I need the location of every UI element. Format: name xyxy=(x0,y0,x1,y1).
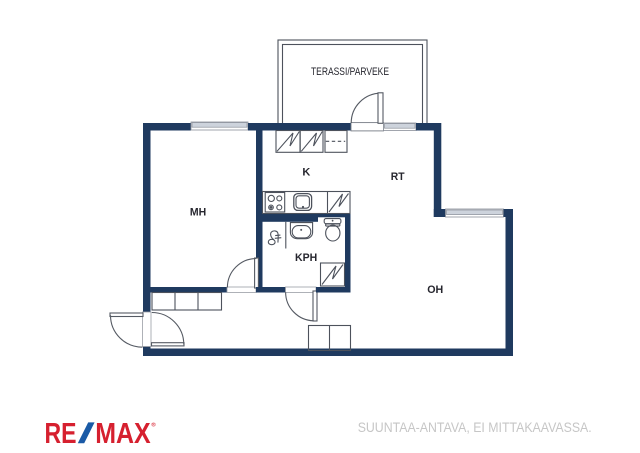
svg-text:TERASSI/PARVEKE: TERASSI/PARVEKE xyxy=(311,66,389,78)
svg-text:MH: MH xyxy=(190,207,206,219)
svg-text:KPH: KPH xyxy=(295,252,317,264)
svg-text:RE: RE xyxy=(45,418,77,450)
svg-text:RT: RT xyxy=(391,171,405,183)
svg-text:OH: OH xyxy=(427,284,443,296)
svg-text:SUUNTAA-ANTAVA, EI MITTAKAAVAS: SUUNTAA-ANTAVA, EI MITTAKAAVASSA. xyxy=(358,420,592,435)
svg-text:K: K xyxy=(302,167,310,179)
svg-text:MAX: MAX xyxy=(95,418,151,450)
svg-text:®: ® xyxy=(151,421,156,428)
